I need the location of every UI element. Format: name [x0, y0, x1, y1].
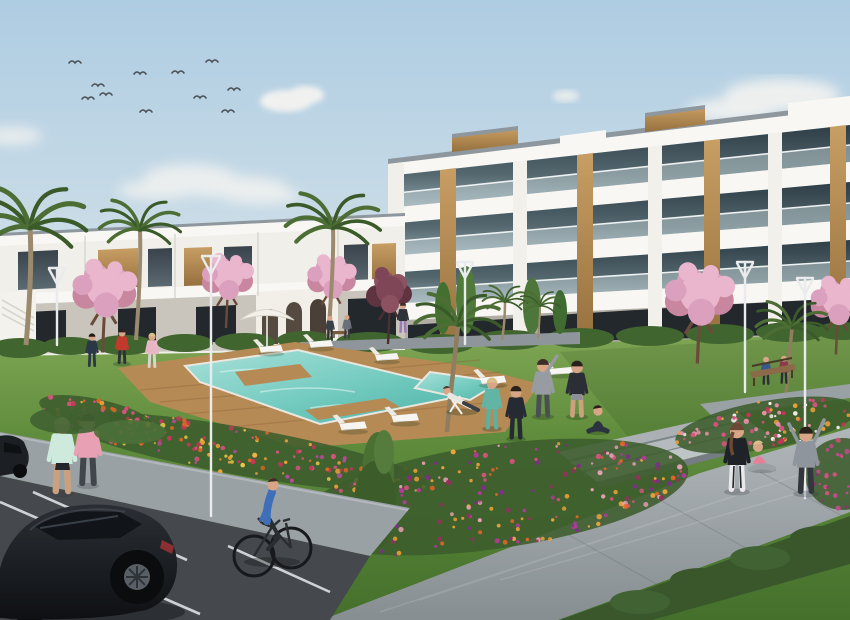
- architectural-render: [0, 0, 850, 620]
